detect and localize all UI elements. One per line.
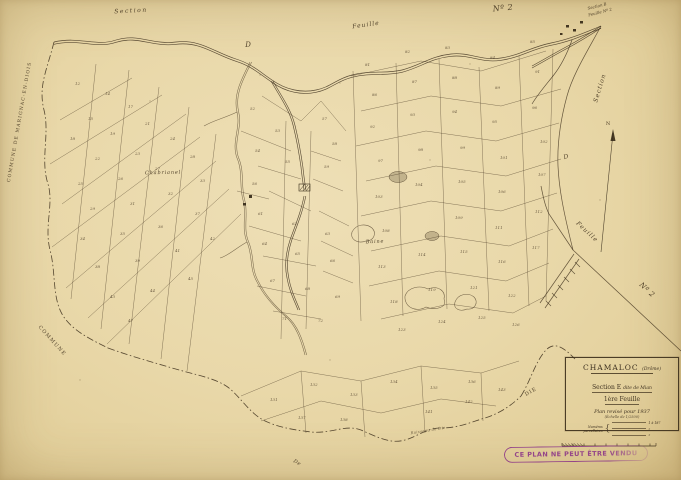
- cadastral-map-sheet: 1214151718192122232425262728293132333435…: [0, 0, 681, 480]
- parcel-number: 133: [350, 392, 358, 397]
- parcel-number: 136: [468, 379, 476, 384]
- parcel-number: 113: [378, 264, 386, 269]
- parcel-number: 96: [532, 105, 538, 110]
- parcel-number: 34: [80, 236, 86, 241]
- parcel-number: 26: [117, 176, 124, 181]
- parcel-number: 93: [410, 112, 416, 117]
- parcel-number: 106: [498, 189, 506, 194]
- title-parcel-numbers-legend: Numéros parcellaires { 1 à 187 » »: [566, 421, 678, 437]
- parcel-number: 36: [158, 224, 164, 229]
- vente-stamp: CE PLAN NE PEUT ÊTRE VENDU: [504, 445, 648, 463]
- parcel-number: 101: [500, 155, 508, 160]
- parcel-number: 18: [70, 136, 76, 141]
- north-arrow: [601, 129, 616, 252]
- parcel-number: 89: [495, 85, 501, 90]
- parcel-number: 44: [149, 288, 156, 293]
- parcel-number: 105: [458, 179, 466, 184]
- parcel-number: 132: [310, 382, 318, 387]
- parcel-number: 91: [535, 69, 540, 74]
- parcel-number: 107: [538, 172, 546, 177]
- parcel-number: 59: [324, 164, 330, 169]
- parcel-number: 58: [332, 141, 338, 146]
- parcel-number: 111: [495, 225, 503, 230]
- parcel-number: 37: [195, 211, 201, 216]
- parcel-number: 122: [508, 293, 516, 298]
- parcel-number: 69: [335, 294, 341, 299]
- parcel-number: 12: [75, 81, 81, 86]
- parcel-number: 68: [305, 286, 311, 291]
- parcel-number: 24: [169, 136, 176, 141]
- parcel-number: 115: [460, 249, 468, 254]
- parcel-number: 64: [262, 241, 268, 246]
- parcel-number: 27: [154, 166, 161, 171]
- parcel-number: 22: [94, 156, 101, 161]
- legend-range: 1 à 187: [648, 421, 660, 425]
- parcel-number: 109: [455, 215, 463, 220]
- parcel-number: 15: [88, 116, 94, 121]
- parcel-number: 118: [390, 299, 398, 304]
- parcel-number: 124: [438, 319, 446, 324]
- parcel-number: 99: [460, 145, 466, 150]
- parcel-number: 85: [530, 39, 536, 44]
- parcel-number: 138: [340, 417, 348, 422]
- parcel-numbers: 1214151718192122232425262728293132333435…: [70, 39, 548, 422]
- parcel-number: 17: [128, 104, 134, 109]
- parcel-number: 121: [470, 285, 478, 290]
- parcel-number: 86: [372, 92, 378, 97]
- parcel-number: 43: [109, 294, 116, 299]
- title-departement: (Drôme): [642, 367, 661, 372]
- title-commune-line: CHAMALOC (Drôme): [566, 363, 678, 372]
- parcel-number: 38: [95, 264, 101, 269]
- parcel-number: 119: [428, 287, 436, 292]
- parcel-number: 126: [512, 322, 520, 327]
- paper-speckles: [79, 63, 600, 380]
- section-edges: [540, 26, 681, 351]
- parcel-number: 33: [200, 178, 206, 183]
- parcel-number: 134: [390, 379, 398, 384]
- river: [204, 62, 307, 355]
- parcel-number: 97: [378, 158, 384, 163]
- parcel-number: 104: [415, 182, 423, 187]
- title-section: Section E: [592, 384, 621, 391]
- parcel-number: 135: [430, 385, 438, 390]
- parcel-number: 28: [189, 154, 196, 159]
- parcel-number: 45: [187, 276, 194, 281]
- parcel-number: 102: [540, 139, 548, 144]
- parcel-number: 112: [535, 209, 543, 214]
- parcel-number: 116: [498, 259, 506, 264]
- parcel-number: 23: [134, 151, 141, 156]
- title-commune: CHAMALOC: [583, 363, 639, 372]
- parcel-number: 81: [365, 62, 370, 67]
- parcel-number: 117: [532, 245, 540, 250]
- parcel-number: 142: [465, 399, 473, 404]
- title-scale: (Échelle de 1/2500): [566, 415, 678, 419]
- title-section-sub: dite de Mian: [623, 386, 652, 391]
- parcel-number: 32: [168, 191, 174, 196]
- legend-brace: {: [605, 424, 611, 434]
- parcel-number: 87: [412, 79, 418, 84]
- parcel-number: 19: [110, 131, 116, 136]
- parcel-number: 65: [295, 251, 301, 256]
- parcel-number: 66: [330, 258, 336, 263]
- parcel-number: 83: [445, 45, 451, 50]
- title-block: CHAMALOC (Drôme) Section E dite de Mian …: [565, 357, 679, 431]
- parcel-number: 14: [105, 91, 111, 96]
- parcel-number: 103: [375, 194, 383, 199]
- vente-stamp-text: CE PLAN NE PEUT ÊTRE VENDU: [514, 449, 637, 459]
- parcel-number: 71: [282, 316, 287, 321]
- parcel-number: 143: [498, 387, 506, 392]
- parcel-number: 95: [492, 119, 498, 124]
- parcel-number: 54: [255, 148, 261, 153]
- parcel-number: 108: [382, 228, 390, 233]
- parcel-number: 42: [209, 236, 216, 241]
- parcel-number: 31: [130, 201, 135, 206]
- parcel-number: 114: [418, 252, 426, 257]
- title-sheet: 1ère Feuille: [566, 396, 678, 403]
- title-section-line: Section E dite de Mian: [592, 384, 652, 393]
- parcel-number: 92: [370, 124, 376, 129]
- parcel-number: 56: [252, 181, 258, 186]
- parcel-number: 35: [120, 231, 126, 236]
- parcel-number: 21: [144, 121, 150, 126]
- parcel-lines: [50, 49, 561, 437]
- legend-numeros-label: Numéros parcellaires: [584, 425, 603, 433]
- parcel-number: 67: [270, 278, 276, 283]
- parcel-number: 29: [89, 206, 96, 211]
- parcel-number: 94: [452, 109, 458, 114]
- parcel-number: 98: [418, 147, 424, 152]
- parcel-number: 25: [77, 181, 84, 186]
- parcel-number: 88: [452, 75, 458, 80]
- parcel-number: 137: [298, 415, 306, 420]
- parcel-number: 62: [292, 221, 298, 226]
- parcel-number: 52: [250, 106, 256, 111]
- parcel-number: 123: [398, 327, 406, 332]
- parcel-number: 55: [285, 159, 291, 164]
- parcel-number: 125: [478, 315, 486, 320]
- parcel-number: 53: [275, 128, 281, 133]
- parcel-number: 57: [322, 116, 328, 121]
- parcel-number: 141: [425, 409, 433, 414]
- parcel-number: 47: [127, 318, 134, 323]
- parcel-number: 82: [405, 49, 411, 54]
- commune-boundary-dotdash: [42, 42, 575, 441]
- parcel-number: 131: [270, 397, 278, 402]
- parcel-number: 61: [258, 211, 263, 216]
- parcel-number: 63: [325, 231, 331, 236]
- parcel-number: 39: [135, 258, 141, 263]
- terrain-blobs: [352, 172, 477, 311]
- title-sheet-underline: [605, 404, 639, 405]
- parcel-number: 41: [174, 248, 180, 253]
- parcel-number: 72: [318, 318, 324, 323]
- parcel-number: 84: [490, 55, 496, 60]
- legend-rows: 1 à 187 » »: [612, 421, 660, 437]
